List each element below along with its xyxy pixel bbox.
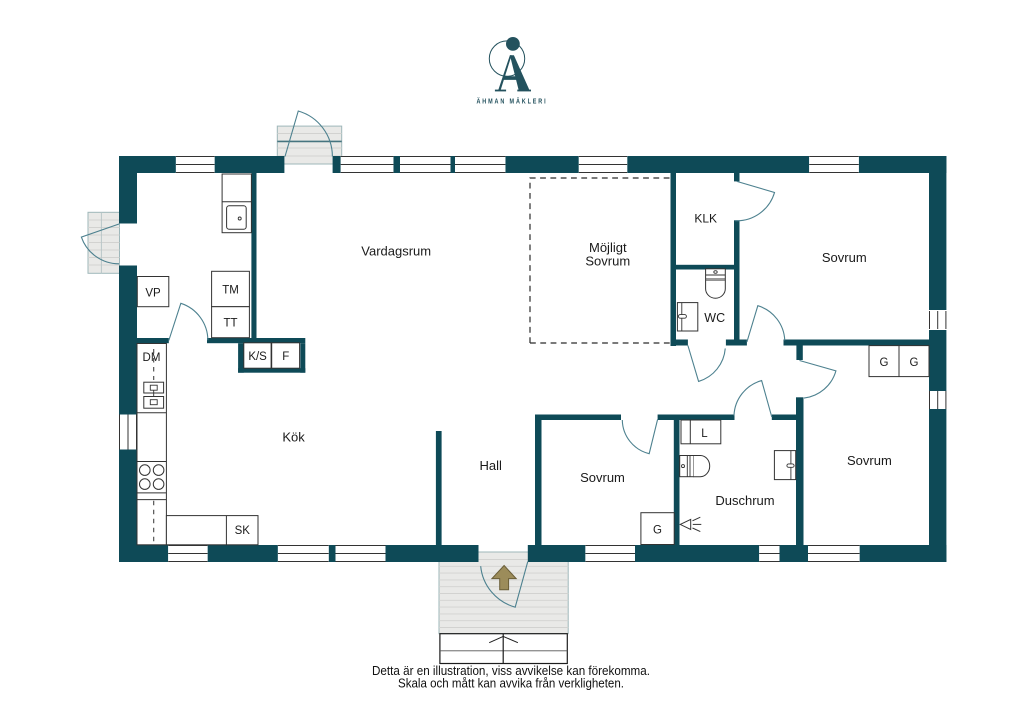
- svg-text:G: G: [880, 357, 889, 369]
- svg-text:Duschrum: Duschrum: [715, 493, 774, 508]
- svg-text:L: L: [701, 428, 708, 440]
- svg-text:VP: VP: [145, 287, 161, 299]
- svg-text:ÄHMAN MÄKLERI: ÄHMAN MÄKLERI: [477, 97, 548, 106]
- svg-text:Skala och mått kan avvika från: Skala och mått kan avvika från verklighe…: [398, 676, 624, 691]
- svg-text:Hall: Hall: [479, 458, 502, 473]
- svg-text:G: G: [910, 357, 919, 369]
- svg-text:Kök: Kök: [282, 430, 305, 445]
- svg-text:KLK: KLK: [694, 211, 717, 225]
- svg-text:F: F: [282, 351, 289, 363]
- svg-text:WC: WC: [704, 311, 725, 325]
- svg-text:TM: TM: [222, 285, 239, 297]
- svg-text:Sovrum: Sovrum: [847, 453, 892, 468]
- svg-text:G: G: [653, 524, 662, 536]
- svg-text:K/S: K/S: [248, 351, 267, 363]
- svg-text:Vardagsrum: Vardagsrum: [361, 244, 431, 259]
- svg-text:TT: TT: [223, 318, 237, 330]
- svg-text:DM: DM: [143, 352, 161, 364]
- svg-text:Sovrum: Sovrum: [585, 254, 630, 269]
- svg-text:Sovrum: Sovrum: [580, 470, 625, 485]
- svg-text:SK: SK: [235, 525, 251, 537]
- svg-text:Sovrum: Sovrum: [822, 250, 867, 265]
